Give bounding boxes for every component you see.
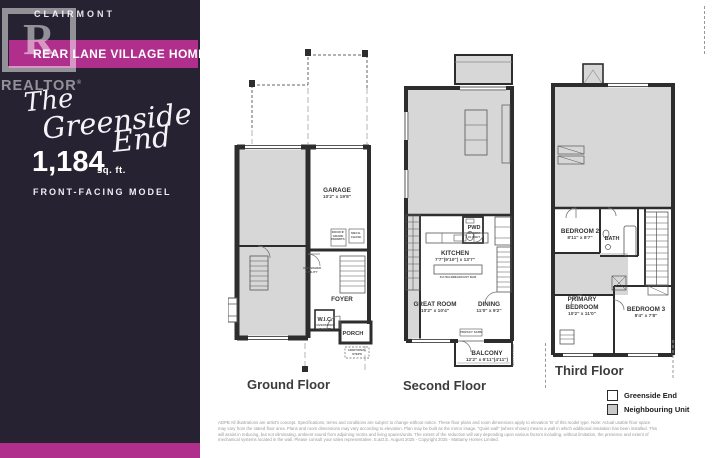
second-floor-title: Second Floor [403, 378, 486, 393]
model-type: FRONT-FACING MODEL [33, 187, 172, 197]
bath-label: BATH [605, 236, 620, 243]
bedroom3-label: BEDROOM 3 [627, 306, 665, 313]
ground-floor-title: Ground Floor [247, 377, 330, 392]
sidebar-accent-bar [0, 443, 200, 458]
primary-bedroom-dims: 10'2" x 11'0" [568, 312, 596, 318]
realtor-logo-icon: R [2, 8, 76, 72]
disclaimer-line-1: ADPB All illustrations are artist's conc… [218, 420, 718, 426]
privacy-screen-vertical: PRIVACY SCRN [511, 344, 515, 366]
roofline-dashed [252, 55, 367, 130]
disclaimer-line-2: may vary from the stated floor area. Pla… [218, 426, 718, 432]
bedroom2-dims: 8'11" x 8'7" [567, 236, 592, 242]
ground-floor-plan: GARAGE 10'2" x 19'8" FOYER W.I.C. OVERSI… [228, 18, 398, 393]
guide-line-dashed [704, 6, 705, 54]
kitchen-label: KITCHEN [441, 250, 469, 257]
square-footage: 1,184 [32, 146, 105, 179]
stairs [645, 212, 668, 285]
mech-note: MECH.CHASE [351, 232, 362, 239]
second-floor-plan: PWD BROOMCLOSET KITCHEN 7'7"(9'10") x 13… [398, 50, 548, 395]
porch-label: PORCH [343, 331, 364, 338]
square-footage-unit: sq. ft. [97, 165, 126, 176]
utility-note: UNFINISHEDUTILITY [303, 267, 321, 274]
note-boxes [331, 229, 369, 358]
third-floor-drawing [548, 58, 720, 388]
realtor-logo-r: R [23, 18, 55, 62]
legend-label-greenside: Greenside End [624, 391, 677, 400]
garage-label: GARAGE [323, 187, 351, 194]
flyer-page: CLAIRMONT REAR LANE VILLAGE HOMES R REAL… [0, 0, 720, 458]
bay-window [583, 64, 603, 85]
primary-bedroom-label-2: BEDROOM [566, 304, 599, 311]
neighbour-swatch [607, 404, 618, 415]
greenside-swatch [607, 390, 618, 401]
garage-dims: 10'2" x 19'8" [323, 195, 351, 201]
third-floor-plan: BEDROOM 2 8'11" x 8'7" BATH PRIMARY BEDR… [548, 58, 720, 388]
registered-mark: ® [77, 80, 82, 86]
primary-bedroom-label-1: PRIMARY [568, 296, 597, 303]
third-floor-title: Third Floor [555, 363, 624, 378]
foyer-label: FOYER [331, 296, 353, 303]
dining-dims: 11'0" x 9'2" [476, 309, 501, 315]
door-grade-note: DOOR IFGRADEPERMITS [331, 231, 344, 242]
disclaimer-line-4: mechanical systems located in the wall. … [218, 437, 718, 443]
steps-note: ADDITIONALSTEPS [348, 349, 367, 356]
dining-label: DINING [478, 301, 500, 308]
kitchen-dims: 7'7"(9'10") x 13'7" [435, 258, 475, 264]
neighbour-unit-area [555, 87, 671, 295]
wic-note: OVERSIZEDCLOSET [316, 324, 333, 331]
guide-line-dashed [545, 343, 546, 388]
legend-item-neighbour: Neighbouring Unit [607, 404, 689, 415]
neighbour-unit-area [237, 147, 308, 338]
disclaimer-text: ADPB All illustrations are artist's conc… [218, 420, 718, 443]
balcony-dims: 12'2" x 6'11"(4'11") [466, 358, 508, 364]
model-name-script-3: End [110, 119, 172, 159]
pwd-note: BROOMCLOSET [468, 232, 480, 239]
great-room-label: GREAT ROOM [414, 301, 457, 308]
second-floor-drawing [398, 50, 548, 395]
legend: Greenside End Neighbouring Unit [607, 390, 689, 418]
ground-floor-drawing [228, 18, 398, 393]
balcony-label: BALCONY [471, 350, 502, 357]
bedroom2-label: BEDROOM 2 [561, 228, 599, 235]
island-note: FLUSH BREAKFAST BAR [440, 276, 477, 280]
great-room-dims: 10'2" x 10'4" [421, 309, 449, 315]
legend-item-greenside: Greenside End [607, 390, 689, 401]
bedroom3-dims: 8'4" x 7'8" [635, 314, 658, 320]
legend-label-neighbour: Neighbouring Unit [624, 405, 689, 414]
privacy-screen-note: PRIVACY SCRN [460, 331, 482, 335]
deck-area [455, 55, 512, 84]
